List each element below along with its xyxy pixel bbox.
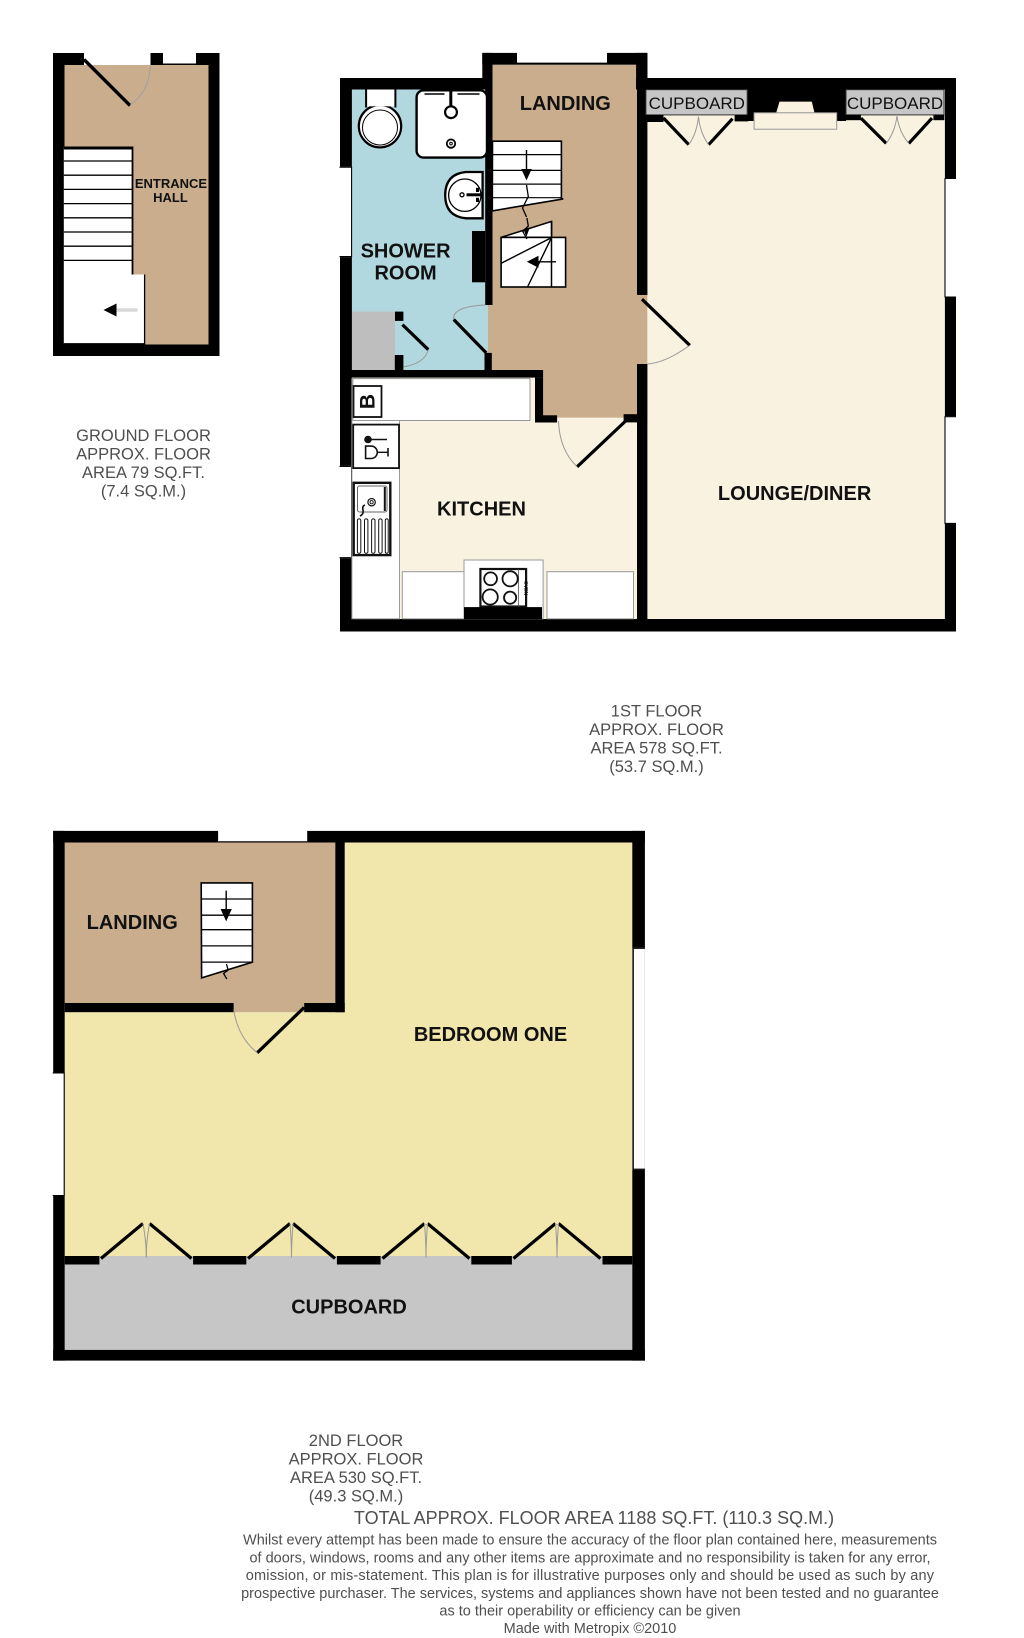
- svg-text:TOTAL APPROX. FLOOR AREA 1188: TOTAL APPROX. FLOOR AREA 1188 SQ.FT. (11…: [354, 1508, 834, 1528]
- svg-text:LANDING: LANDING: [87, 912, 178, 934]
- svg-text:of doors, windows, rooms and a: of doors, windows, rooms and any other i…: [249, 1551, 930, 1567]
- svg-text:(7.4 SQ.M.): (7.4 SQ.M.): [101, 483, 186, 501]
- svg-text:APPROX. FLOOR: APPROX. FLOOR: [289, 1451, 424, 1469]
- svg-text:prospective purchaser. The ser: prospective purchaser. The services, sys…: [241, 1586, 939, 1602]
- svg-text:APPROX. FLOOR: APPROX. FLOOR: [76, 446, 211, 464]
- svg-text:B: B: [357, 394, 380, 409]
- svg-text:LOUNGE/DINER: LOUNGE/DINER: [718, 483, 872, 505]
- svg-text:(53.7 SQ.M.): (53.7 SQ.M.): [609, 758, 703, 776]
- svg-text:GROUND FLOOR: GROUND FLOOR: [76, 427, 211, 445]
- svg-text:Whilst every attempt has been: Whilst every attempt has been made to en…: [243, 1532, 937, 1548]
- svg-text:2ND FLOOR: 2ND FLOOR: [309, 1432, 404, 1450]
- svg-text:SHOWER: SHOWER: [361, 240, 452, 262]
- svg-text:CUPBOARD: CUPBOARD: [649, 94, 745, 113]
- svg-text:Made with Metropix ©2010: Made with Metropix ©2010: [504, 1621, 677, 1637]
- svg-text:OVEN: OVEN: [522, 581, 528, 596]
- svg-text:HALL: HALL: [153, 190, 188, 205]
- svg-text:omission, or mis-statement. Th: omission, or mis-statement. This plan is…: [246, 1568, 935, 1584]
- svg-text:CUPBOARD: CUPBOARD: [847, 94, 943, 113]
- svg-text:ROOM: ROOM: [374, 262, 436, 284]
- svg-text:ENTRANCE: ENTRANCE: [135, 176, 208, 191]
- svg-text:as to their operability or eff: as to their operability or efficiency ca…: [439, 1604, 740, 1620]
- svg-text:(49.3 SQ.M.): (49.3 SQ.M.): [309, 1488, 403, 1506]
- svg-text:1ST FLOOR: 1ST FLOOR: [611, 703, 702, 721]
- svg-text:CUPBOARD: CUPBOARD: [291, 1297, 407, 1319]
- svg-text:APPROX. FLOOR: APPROX. FLOOR: [589, 721, 724, 739]
- svg-text:BEDROOM ONE: BEDROOM ONE: [414, 1024, 567, 1046]
- svg-text:AREA 79 SQ.FT.: AREA 79 SQ.FT.: [82, 464, 205, 482]
- svg-text:AREA 578 SQ.FT.: AREA 578 SQ.FT.: [590, 740, 722, 758]
- svg-text:KITCHEN: KITCHEN: [437, 499, 526, 521]
- svg-text:LANDING: LANDING: [520, 93, 611, 115]
- svg-text:AREA 530 SQ.FT.: AREA 530 SQ.FT.: [290, 1469, 422, 1487]
